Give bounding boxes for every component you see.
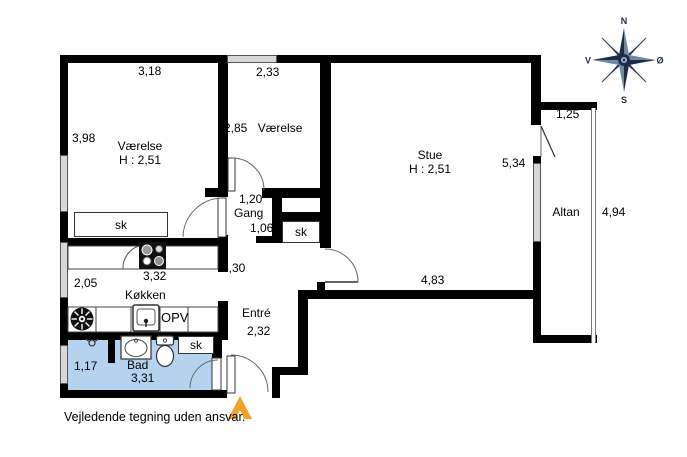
compass-diagonal-needles (602, 38, 646, 82)
stove-icon (139, 242, 166, 269)
compass-hub-ring (621, 57, 627, 63)
balcony-railing (591, 108, 596, 343)
wall-entrance-right (272, 373, 280, 398)
door-stue (325, 249, 358, 282)
room-label-vaerelse1: Værelse H : 2,51 (95, 139, 185, 167)
sink-icon (133, 305, 159, 331)
wall-stue-bottom (298, 290, 541, 299)
dim-stue-width: 4,83 (421, 273, 444, 287)
closet-vaerelse1: sk (74, 212, 168, 237)
room-label-altan: Altan (544, 205, 588, 219)
wall-gang-bottom (256, 236, 282, 243)
room-label-koekken: Køkken (125, 288, 166, 302)
wall-vaerelse1-right-lower-stub (218, 235, 228, 246)
room-label-entre: Entré (242, 306, 271, 320)
dim-entre-width: 2,32 (247, 324, 270, 338)
dim-bad-width: 3,31 (131, 371, 154, 385)
ceiling-height: H : 2,51 (398, 162, 462, 176)
dishwasher-label: OPV (161, 311, 188, 325)
dim-altan-width: 1,25 (556, 107, 579, 121)
wall-balcony-bottom (533, 335, 597, 343)
window-vaerelse1-left (60, 155, 68, 212)
compass-hub (618, 54, 630, 66)
kitchen-counter-bottom (68, 307, 218, 332)
wall-gang-right (272, 188, 282, 243)
room-label-gang: Gang (234, 206, 263, 220)
dim-vaerelse2-width: 2,33 (256, 65, 279, 79)
wall-balcony-left (533, 242, 541, 343)
dim-koekken-width: 3,32 (143, 269, 166, 283)
dim-stue-depth: 5,34 (502, 156, 525, 170)
window-kitchen-left (60, 242, 68, 298)
dim-gang-width: 1,20 (239, 192, 262, 206)
wall-stue-door-stub (317, 282, 325, 291)
wall-kitchen-top (60, 238, 218, 246)
door-vaerelse1 (183, 198, 226, 237)
room-name: Værelse (95, 139, 185, 153)
compass-east-label: Ø (656, 56, 663, 66)
window-stue-balcony (533, 163, 541, 242)
compass-hub-dot (623, 59, 626, 62)
dim-gang-passage: 1,06 (250, 221, 273, 235)
wall-exterior-top (60, 55, 541, 63)
compass-cardinal-needles (592, 28, 656, 92)
wall-stue-right-top (531, 55, 541, 125)
closet-label: sk (115, 218, 127, 232)
compass-rose: N S V Ø (584, 12, 664, 104)
door-vaerelse2 (228, 158, 264, 191)
wall-bath-stub (108, 340, 115, 363)
dim-bad-depth: 1,17 (74, 359, 97, 373)
compass-south-label: S (621, 95, 627, 104)
wall-entre-right (298, 299, 308, 369)
closet-label: sk (190, 338, 202, 352)
room-name: Værelse (258, 121, 303, 135)
room-name: Stue (398, 148, 462, 162)
closet-bath: sk (178, 336, 214, 354)
ceiling-height: H : 2,51 (95, 153, 185, 167)
dim-vaerelse1-width: 3,18 (138, 64, 161, 78)
door-entrance (227, 355, 268, 393)
room-label-stue: Stue H : 2,51 (398, 148, 462, 176)
window-vaerelse2-top (227, 55, 277, 63)
dim-vaerelse2-depth: 2,85 (224, 121, 247, 135)
door-balcony-leaf (541, 126, 555, 157)
closet-entre: sk (282, 221, 320, 243)
dim-koekken-depth: 2,05 (74, 276, 97, 290)
room-label-vaerelse2: 2,85 Værelse (224, 121, 302, 135)
window-bath-left (60, 345, 68, 384)
room-label-bad: Bad (127, 358, 148, 372)
wall-entre-closet-top (282, 212, 320, 221)
dim-koekken-right: 3,30 (222, 261, 245, 275)
kitchen-counter-top (68, 246, 218, 269)
fan-icon (71, 308, 94, 331)
wall-stue-left (320, 55, 331, 248)
disclaimer-text: Vejledende tegning uden ansvar. (64, 410, 245, 424)
dim-vaerelse1-depth: 3,98 (72, 131, 95, 145)
compass-west-label: V (585, 56, 591, 66)
wall-exterior-bottom-bath (60, 390, 227, 398)
compass-north-label: N (621, 16, 628, 26)
wall-vaerelse1-corner-stub (205, 188, 228, 197)
dim-altan-depth: 4,94 (602, 205, 625, 219)
floor-plan: sk sk sk (0, 0, 687, 457)
wall-vaerelse2-bottom (262, 188, 321, 198)
wall-kitchen-right-lower (218, 301, 228, 340)
closet-label: sk (295, 225, 307, 239)
wall-stue-right-stub (533, 156, 541, 163)
